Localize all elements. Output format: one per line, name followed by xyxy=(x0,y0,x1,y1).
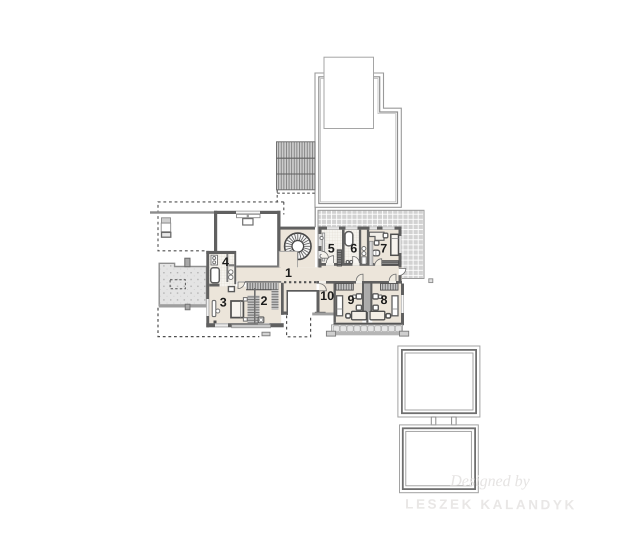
svg-text:6: 6 xyxy=(350,242,357,256)
svg-text:1: 1 xyxy=(285,266,292,280)
svg-text:LESZEK KALANDYK: LESZEK KALANDYK xyxy=(405,497,577,513)
svg-text:10: 10 xyxy=(320,289,334,303)
svg-text:Designed by: Designed by xyxy=(449,473,531,490)
svg-text:7: 7 xyxy=(380,242,387,256)
svg-text:8: 8 xyxy=(380,293,387,307)
svg-text:9: 9 xyxy=(347,293,354,307)
svg-text:3: 3 xyxy=(220,295,227,309)
svg-text:4: 4 xyxy=(222,255,229,269)
svg-text:5: 5 xyxy=(328,241,335,255)
svg-text:2: 2 xyxy=(260,294,267,308)
